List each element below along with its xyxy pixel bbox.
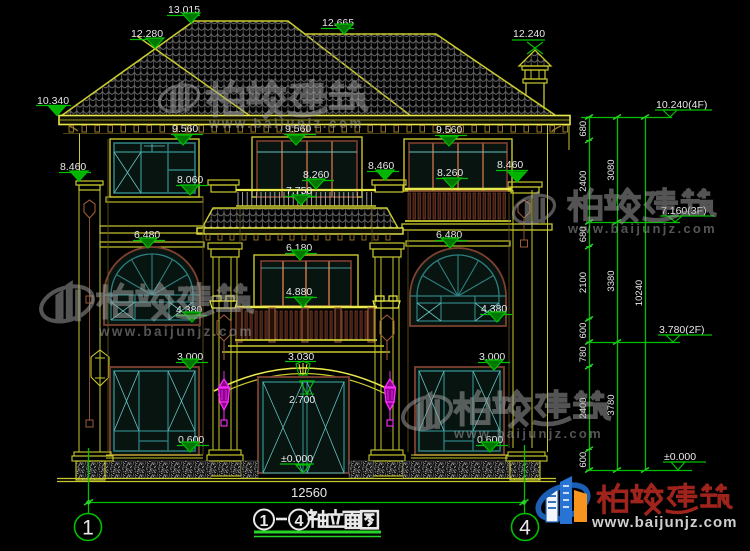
- svg-text:www.baijunjz.com: www.baijunjz.com: [453, 426, 603, 441]
- svg-text:2400: 2400: [578, 171, 589, 192]
- svg-text:4: 4: [295, 513, 304, 530]
- svg-text:4: 4: [519, 517, 531, 540]
- svg-text:8.260: 8.260: [437, 167, 463, 179]
- svg-text:8.060: 8.060: [177, 174, 203, 186]
- svg-text:1: 1: [82, 517, 94, 540]
- svg-text:10.240(4F): 10.240(4F): [656, 99, 707, 111]
- svg-text:www.baijunjz.com: www.baijunjz.com: [591, 514, 737, 531]
- svg-text:3.780(2F): 3.780(2F): [659, 324, 705, 336]
- svg-text:10240: 10240: [634, 280, 645, 306]
- svg-text:3780: 3780: [606, 394, 617, 415]
- svg-text:1: 1: [260, 513, 269, 530]
- svg-text:780: 780: [578, 346, 589, 362]
- svg-text:±0.000: ±0.000: [664, 451, 696, 463]
- svg-text:2100: 2100: [578, 272, 589, 293]
- svg-text:4.880: 4.880: [286, 286, 312, 298]
- svg-text:3380: 3380: [606, 270, 617, 291]
- svg-text:www.baijunjz.com: www.baijunjz.com: [567, 221, 717, 236]
- svg-text:600: 600: [578, 323, 589, 339]
- svg-text:www.baijunjz.com: www.baijunjz.com: [98, 324, 254, 339]
- svg-text:8.460: 8.460: [497, 159, 523, 171]
- svg-text:www.baijunjz.com: www.baijunjz.com: [208, 116, 364, 131]
- svg-text:9.560: 9.560: [172, 123, 198, 135]
- svg-text:3080: 3080: [606, 159, 617, 180]
- svg-text:±0.000: ±0.000: [281, 453, 313, 465]
- svg-text:12560: 12560: [291, 485, 327, 500]
- svg-text:12.240: 12.240: [513, 28, 545, 40]
- svg-text:600: 600: [578, 452, 589, 468]
- svg-text:680: 680: [578, 121, 589, 137]
- svg-text:9.560: 9.560: [436, 124, 462, 136]
- svg-text:2.700: 2.700: [289, 394, 315, 406]
